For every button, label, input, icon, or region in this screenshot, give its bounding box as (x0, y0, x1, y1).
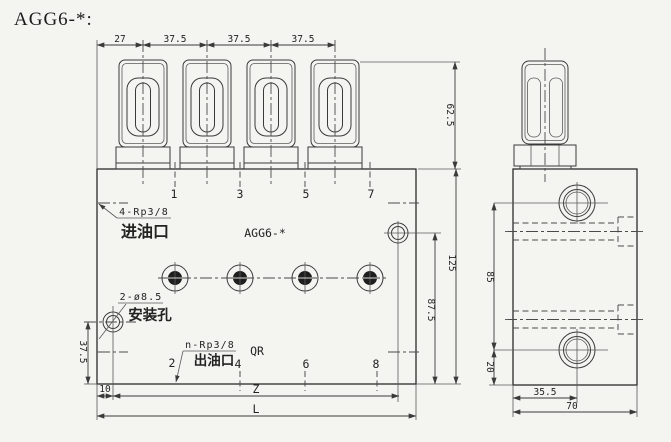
valve-station-4 (308, 40, 362, 186)
dim-37-5-a: 37.5 (164, 34, 187, 45)
dim-20: 20 (484, 361, 495, 373)
side-port-upper (494, 182, 608, 224)
outlet-label: 出油口 (194, 352, 235, 369)
mount-spec: 2-ø8.5 (120, 292, 163, 303)
dim-z: Z (253, 382, 260, 396)
inlet-spec: 4-Rp3/8 (119, 207, 169, 218)
outlet-callout: n-Rp3/8 出油口 QR (176, 340, 264, 382)
dim-l: L (253, 402, 260, 416)
port-number-6: 6 (303, 357, 310, 371)
side-block-outline (513, 169, 637, 385)
dim-27: 27 (114, 34, 125, 45)
side-view (494, 48, 645, 385)
hidden-passage-lower (505, 305, 645, 334)
port-number-7: 7 (368, 187, 375, 201)
inlet-callout: 4-Rp3/8 进油口 (99, 204, 171, 241)
dim-37-5-c: 37.5 (292, 34, 315, 45)
drawing-title: AGG6-*: (14, 9, 93, 30)
outlet-note: QR (250, 344, 264, 358)
port-number-2: 2 (169, 356, 176, 370)
dim-37-5-left: 37.5 (77, 341, 88, 364)
dim-10: 10 (99, 384, 111, 395)
dim-85: 85 (484, 271, 495, 282)
side-valve (514, 48, 576, 182)
valve-station-3 (244, 40, 298, 186)
port-number-3: 3 (237, 187, 244, 201)
dim-62-5: 62.5 (444, 104, 455, 127)
technical-drawing: AGG6-*: (0, 0, 671, 442)
port-number-8: 8 (373, 357, 380, 371)
inlet-label: 进油口 (121, 222, 169, 241)
mount-label: 安装孔 (128, 306, 172, 324)
dim-37-5-b: 37.5 (228, 34, 251, 45)
port-number-1: 1 (171, 187, 178, 201)
model-label: AGG6-* (244, 226, 286, 240)
front-ports (158, 262, 387, 294)
top-port-ticks: 1 3 5 7 (171, 162, 375, 201)
front-valves (116, 40, 362, 186)
front-view: 1 3 5 7 2 4 6 8 (84, 40, 441, 402)
valve-station-1 (116, 40, 170, 186)
valve-station-2 (180, 40, 234, 186)
port-number-5: 5 (303, 187, 310, 201)
drawing-sheet: AGG6-*: (0, 0, 671, 442)
dim-35-5: 35.5 (534, 387, 557, 398)
port-number-4: 4 (235, 357, 242, 371)
dim-87-5: 87.5 (425, 299, 436, 322)
mounting-callout: 2-ø8.5 安装孔 (118, 292, 172, 324)
dim-125: 125 (446, 254, 457, 271)
side-port-lower (494, 329, 608, 371)
dim-70: 70 (566, 401, 578, 412)
outlet-spec: n-Rp3/8 (185, 340, 235, 351)
